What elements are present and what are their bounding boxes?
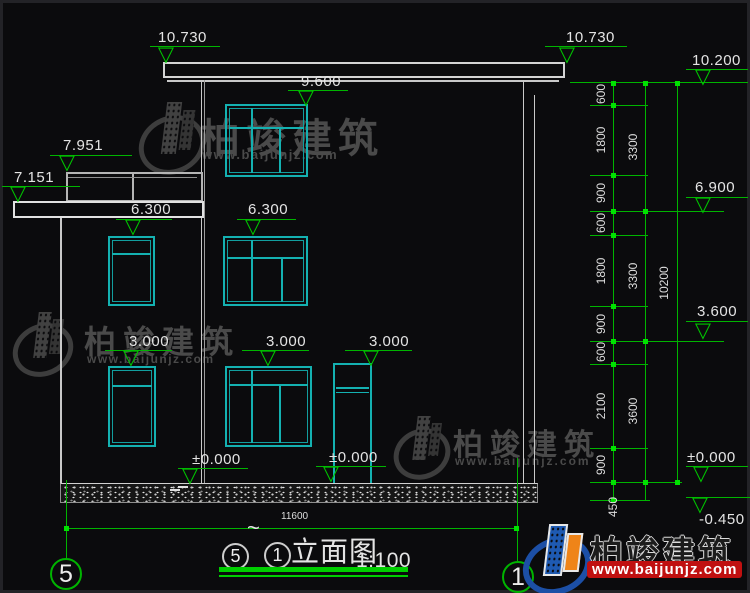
dim-tick-line (590, 364, 648, 365)
roof-slab (163, 62, 565, 78)
dim-tick (611, 81, 616, 86)
dim-chain-line (645, 83, 646, 501)
elevation-label: ±0.000 (192, 452, 241, 468)
window-3f-transom (229, 127, 304, 129)
window-2f-right-mullion (281, 259, 283, 302)
window-1f-left-inner-frame (112, 370, 152, 443)
elevation-triangle-icon: ▽ (120, 349, 142, 366)
dim-tick (611, 339, 616, 344)
elevation-triangle-icon: ▽ (56, 154, 78, 171)
dim-tick-line (570, 82, 748, 83)
balcony-slab (13, 201, 204, 218)
dim-tick (643, 81, 648, 86)
hatch-step-detail (170, 489, 180, 491)
window-2f-left-inner-frame (112, 240, 151, 302)
dim-label: 1800 (594, 258, 608, 285)
wall-line (534, 95, 535, 483)
dim-tick (611, 480, 616, 485)
elevation-triangle-icon: ▽ (692, 196, 714, 213)
dim-tick (64, 526, 69, 531)
dim-tick (611, 446, 616, 451)
railing-top-rail (68, 177, 197, 178)
dim-label: 3300 (626, 134, 640, 161)
dim-label: 900 (594, 314, 608, 334)
window-2f-right-inner-frame (227, 240, 304, 302)
cad-elevation-drawing: 柏竣建筑 www.baijunjz.com 柏竣建筑 www.baijunjz.… (0, 0, 750, 593)
elevation-triangle-icon: ▽ (690, 465, 712, 482)
dim-label: 3300 (626, 263, 640, 290)
elevation-triangle-icon: ▽ (7, 185, 29, 202)
wall-line (60, 218, 62, 483)
door-transom (336, 387, 369, 389)
elevation-triangle-icon: ▽ (692, 322, 714, 339)
dim-tick (611, 233, 616, 238)
window-2f-right-mullion (251, 240, 253, 302)
title-axis-circle-to: 1 (264, 542, 291, 569)
dim-label: 600 (594, 213, 608, 233)
width-dim-label: 11600 (281, 511, 308, 522)
dim-chain-line (677, 83, 678, 483)
dim-tick (643, 480, 648, 485)
title-axis-to-label: 1 (272, 545, 282, 566)
watermark-url-text: www.baijunjz.com (87, 352, 215, 366)
window-2f-left-transom (112, 253, 151, 255)
dim-tick-line (590, 500, 650, 501)
dim-chain-line (613, 83, 614, 501)
dim-label: 900 (594, 455, 608, 475)
elevation-triangle-icon: ▽ (179, 467, 201, 484)
dim-tick (675, 81, 680, 86)
title-underline-thick (219, 567, 408, 572)
elevation-triangle-icon: ▽ (242, 218, 264, 235)
width-dim-line (66, 528, 517, 529)
axis-bubble-left: 5 (50, 558, 82, 590)
title-underline-thin (219, 575, 408, 577)
axis-line-left (66, 480, 67, 558)
dim-tick (611, 173, 616, 178)
dim-label-total: 10200 (657, 266, 671, 299)
dim-tick (643, 339, 648, 344)
elevation-triangle-icon: ▽ (155, 46, 177, 63)
axis-bubble-left-label: 5 (59, 560, 73, 589)
roof-slab-underline (167, 80, 559, 82)
dim-tick-line (590, 235, 648, 236)
window-3f-mullion (279, 129, 281, 173)
dim-tick-line (590, 482, 682, 483)
window-3f-inner-frame (229, 108, 304, 173)
dim-tick (611, 103, 616, 108)
title-axis-from-label: 5 (230, 546, 240, 567)
window-1f-left-transom (112, 385, 152, 387)
elevation-triangle-icon: ▽ (257, 349, 279, 366)
dim-label: 1800 (594, 127, 608, 154)
window-3f-mullion (251, 108, 253, 173)
elevation-triangle-icon: ▽ (692, 68, 714, 85)
title-axis-circle-from: 5 (222, 543, 249, 570)
title-tilde: ~ (247, 520, 260, 536)
dim-tick (675, 480, 680, 485)
dim-label: 2100 (594, 393, 608, 420)
dim-tick (611, 304, 616, 309)
dim-label: 600 (594, 84, 608, 104)
dim-tick-line (590, 306, 648, 307)
dim-tick-line (590, 448, 648, 449)
dim-tick-line (590, 175, 648, 176)
window-2f-right-transom (227, 257, 304, 259)
elevation-triangle-icon: ▽ (556, 46, 578, 63)
elevation-triangle-icon: ▽ (122, 218, 144, 235)
dim-tick (611, 362, 616, 367)
wall-line (204, 80, 205, 483)
ground-hatch (60, 483, 538, 503)
dim-label: 3600 (626, 398, 640, 425)
window-1f-right-inner-frame (229, 370, 308, 443)
brand-url-pill: www.baijunjz.com (587, 561, 742, 578)
elevation-label: 3.600 (697, 304, 737, 320)
dim-label: 900 (594, 183, 608, 203)
door-transom-inner (336, 392, 369, 393)
elevation-triangle-icon: ▽ (295, 89, 317, 106)
elevation-triangle-icon: ▽ (360, 349, 382, 366)
dim-label: 450 (606, 497, 620, 517)
dim-label: 600 (594, 342, 608, 362)
brand-logo: 柏竣建筑 www.baijunjz.com (500, 520, 745, 586)
window-1f-right-transom (229, 384, 308, 386)
dim-tick (643, 209, 648, 214)
window-1f-right-mullion (251, 370, 253, 443)
wall-line (523, 81, 524, 483)
elevation-triangle-icon: ▽ (320, 465, 342, 482)
wall-line (201, 80, 202, 483)
dim-tick-line (590, 105, 648, 106)
dim-tick (611, 209, 616, 214)
window-1f-right-mullion (279, 386, 281, 443)
